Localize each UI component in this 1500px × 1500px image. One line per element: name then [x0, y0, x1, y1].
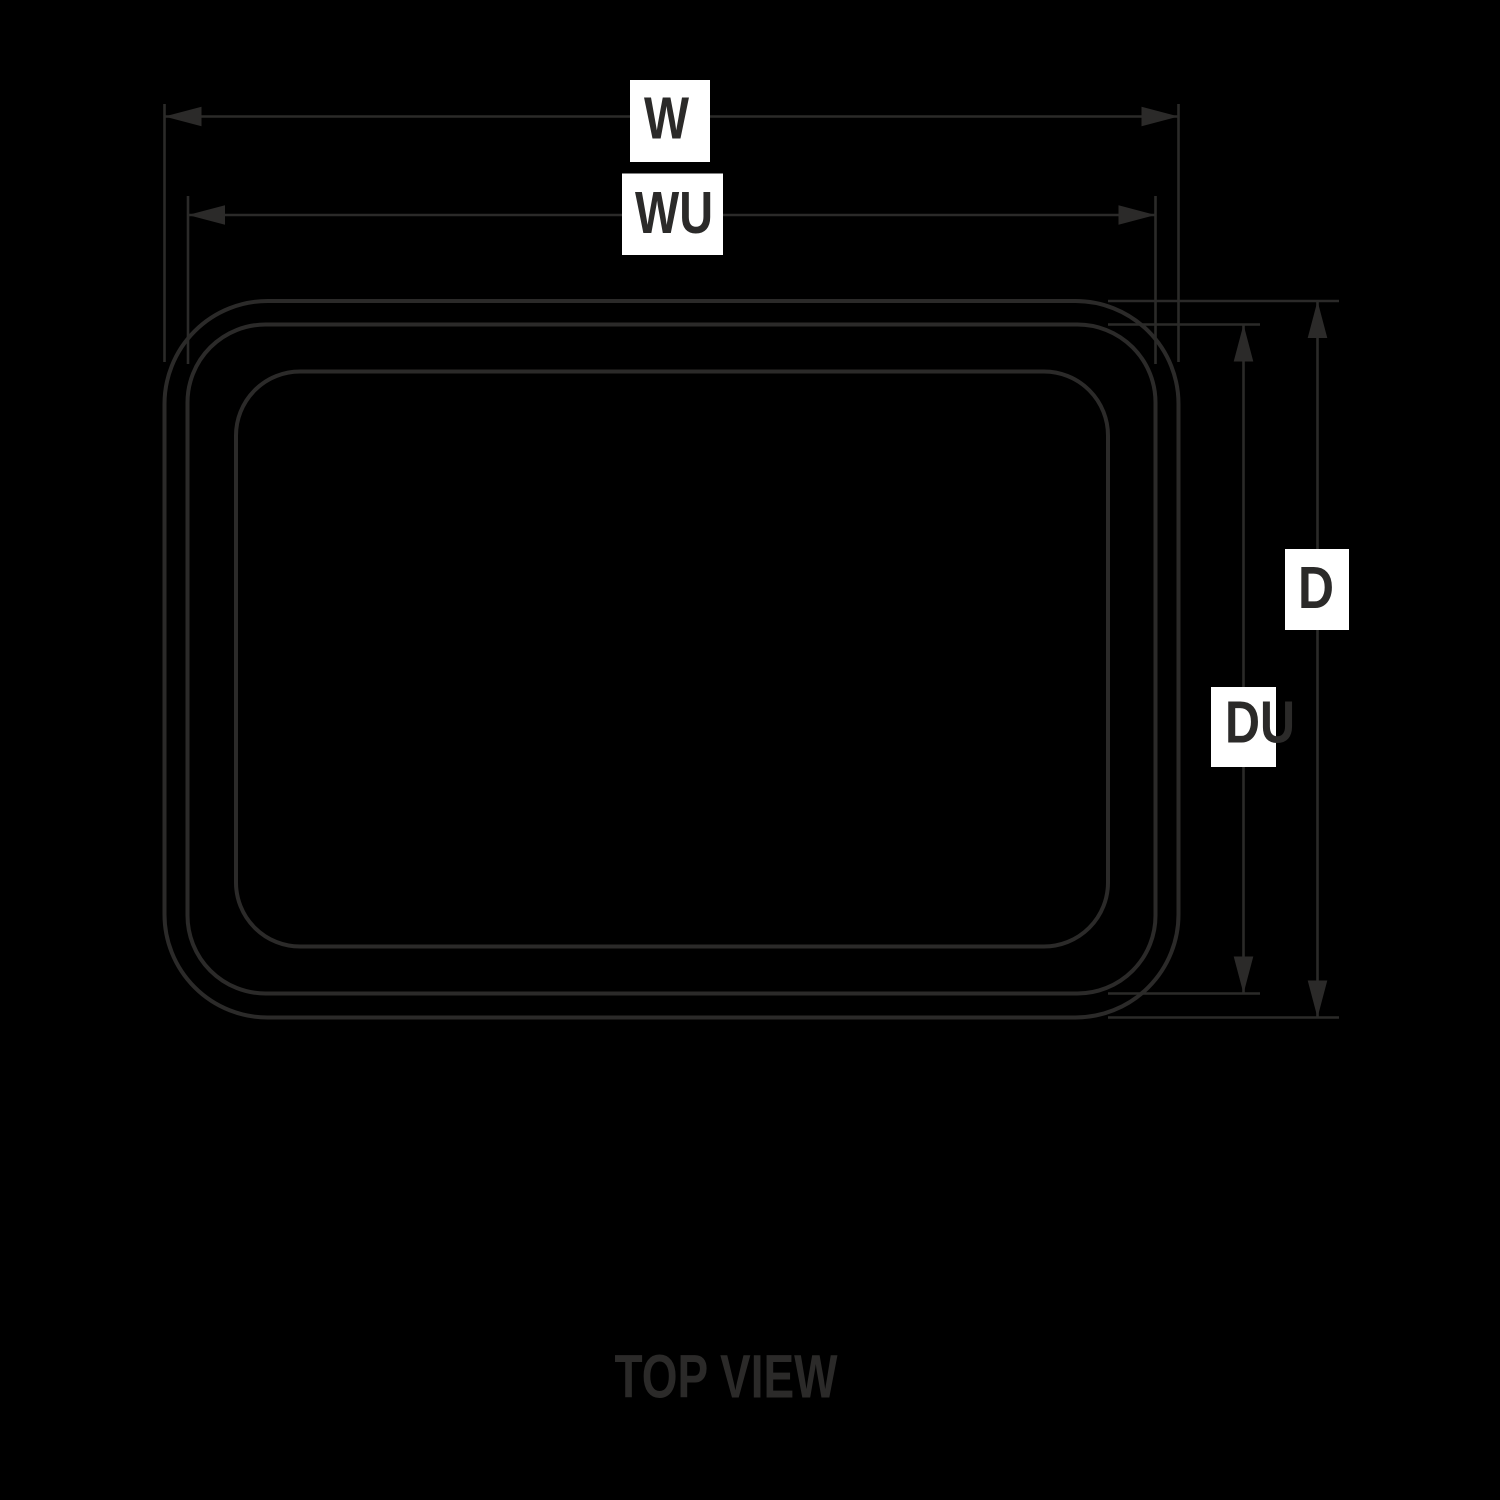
svg-text:W: W — [644, 86, 689, 152]
svg-text:D: D — [1298, 555, 1334, 621]
svg-text:TOP VIEW: TOP VIEW — [615, 1343, 838, 1411]
svg-text:DU: DU — [1225, 690, 1295, 756]
svg-text:WU: WU — [635, 180, 713, 246]
